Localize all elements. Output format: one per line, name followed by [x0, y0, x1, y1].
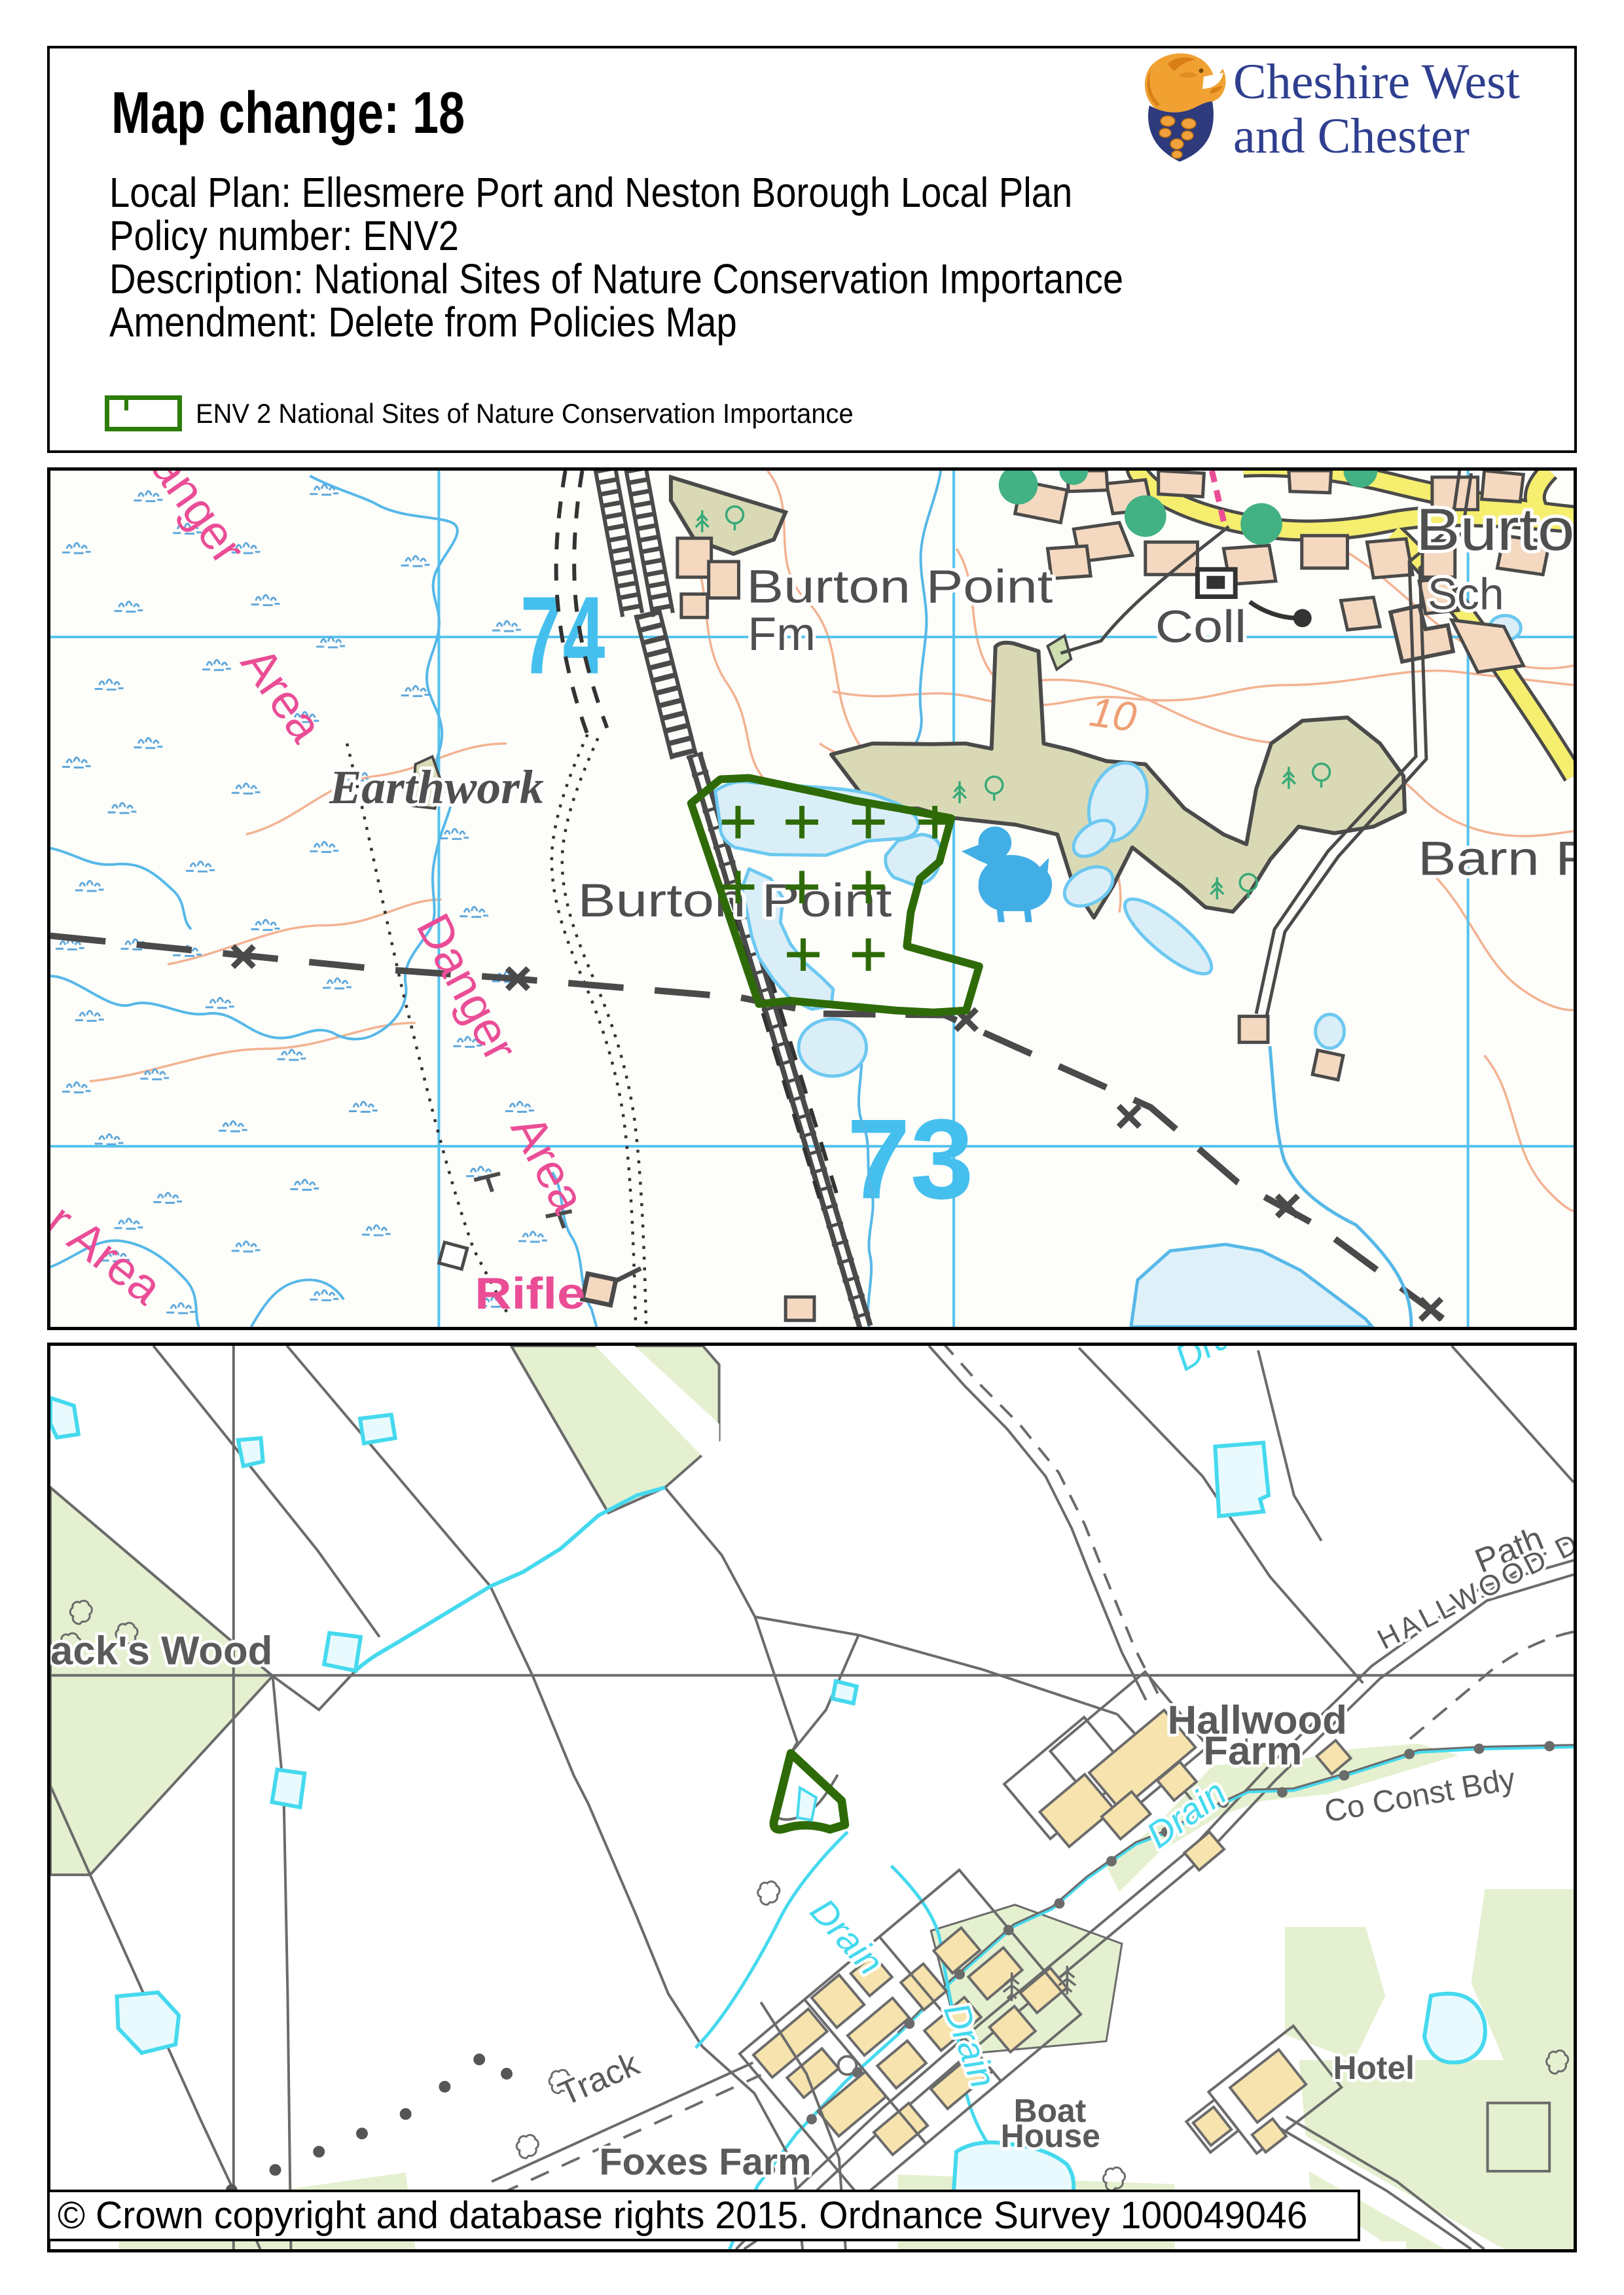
svg-text:Burton Point: Burton Point [746, 561, 1053, 613]
svg-text:House: House [1001, 2118, 1100, 2154]
svg-text:Sch: Sch [1428, 569, 1504, 619]
svg-text:Fm: Fm [748, 608, 815, 660]
svg-text:ack's Wood: ack's Wood [50, 1629, 272, 1674]
svg-text:10: 10 [1087, 689, 1139, 741]
svg-text:Hotel: Hotel [1333, 2050, 1415, 2086]
svg-text:73: 73 [847, 1096, 974, 1223]
svg-text:Burton Point: Burton Point [578, 875, 892, 927]
svg-text:Rifle: Rifle [475, 1269, 585, 1318]
svg-text:Burton: Burton [1416, 496, 1577, 563]
svg-text:Earthwork: Earthwork [329, 760, 544, 814]
svg-text:Coll: Coll [1155, 601, 1246, 652]
svg-text:Farm: Farm [1203, 1728, 1302, 1773]
svg-text:Barn F: Barn F [1418, 831, 1577, 885]
svg-text:Foxes Farm: Foxes Farm [599, 2141, 811, 2183]
